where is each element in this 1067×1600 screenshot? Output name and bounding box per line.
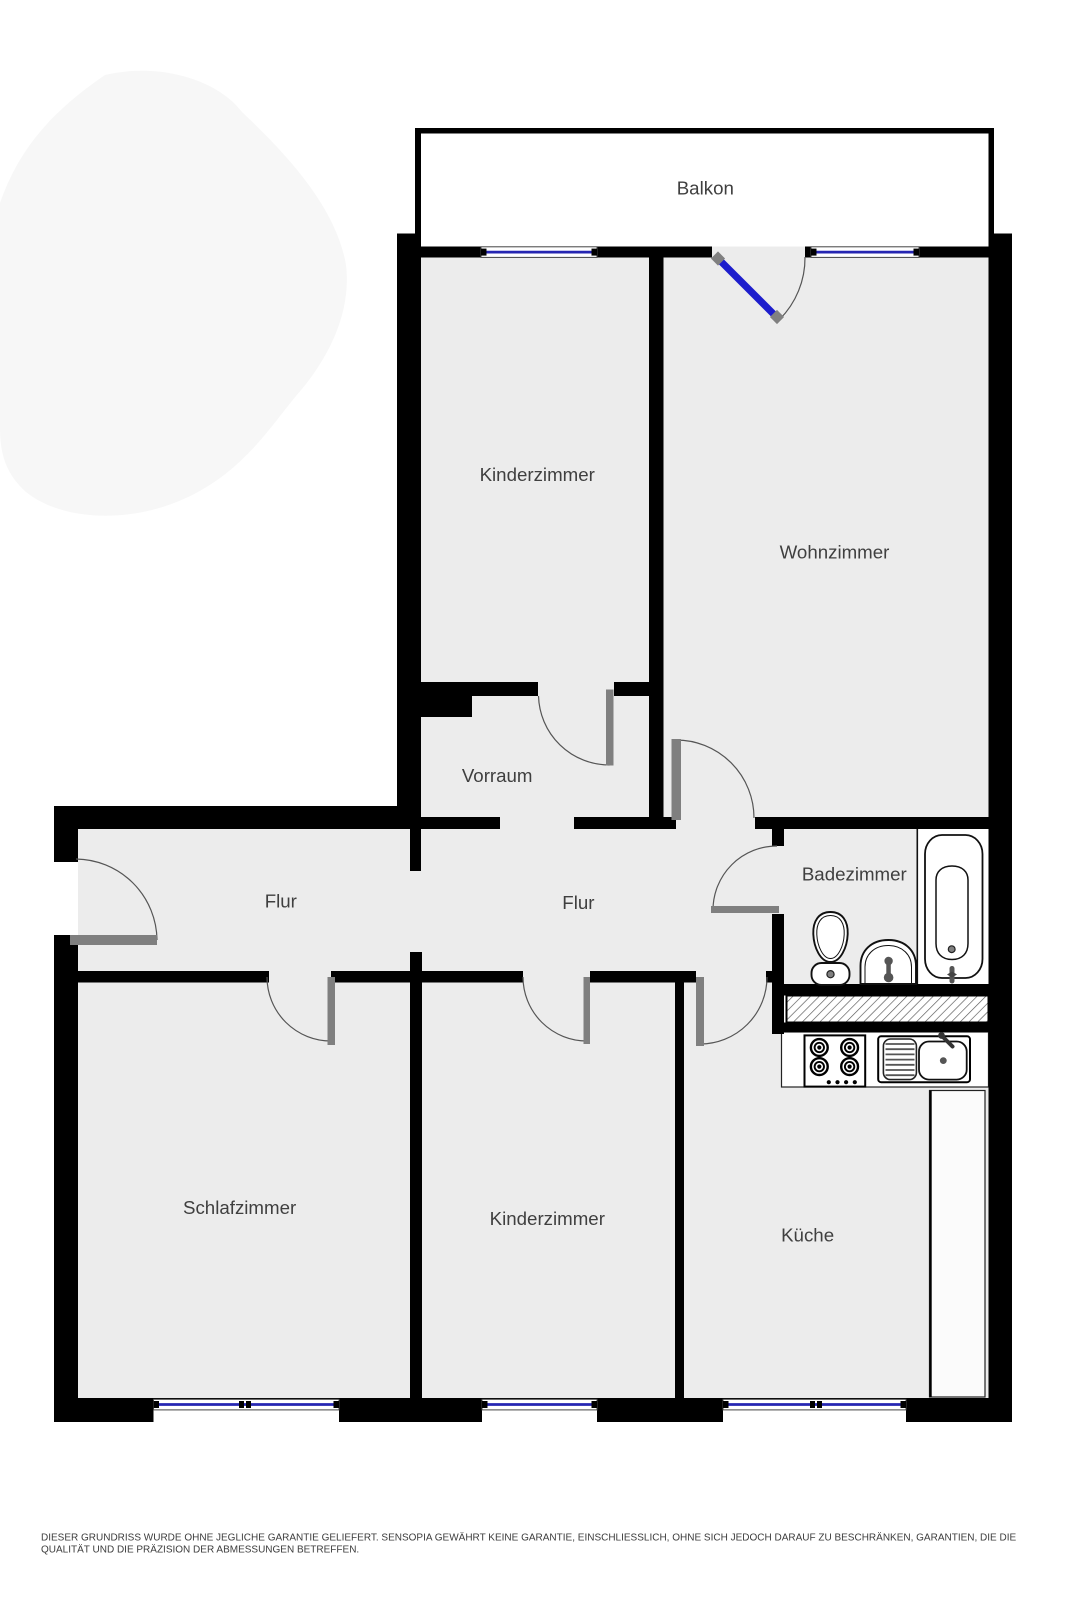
svg-text:Vorraum: Vorraum [462, 765, 533, 786]
svg-text:QUALITÄT UND DIE PRÄZISION DER: QUALITÄT UND DIE PRÄZISION DER ABMESSUNG… [41, 1544, 359, 1556]
svg-text:Badezimmer: Badezimmer [802, 864, 907, 885]
svg-text:Kinderzimmer: Kinderzimmer [490, 1208, 605, 1229]
svg-text:Wohnzimmer: Wohnzimmer [780, 542, 890, 563]
svg-text:Schlafzimmer: Schlafzimmer [183, 1197, 296, 1218]
svg-text:Flur: Flur [562, 892, 594, 913]
svg-text:Küche: Küche [781, 1225, 834, 1246]
svg-text:Flur: Flur [265, 891, 297, 912]
svg-text:Balkon: Balkon [677, 178, 734, 199]
svg-text:Kinderzimmer: Kinderzimmer [480, 464, 595, 485]
svg-text:DIESER GRUNDRISS WURDE OHNE JE: DIESER GRUNDRISS WURDE OHNE JEGLICHE GAR… [41, 1532, 1017, 1544]
